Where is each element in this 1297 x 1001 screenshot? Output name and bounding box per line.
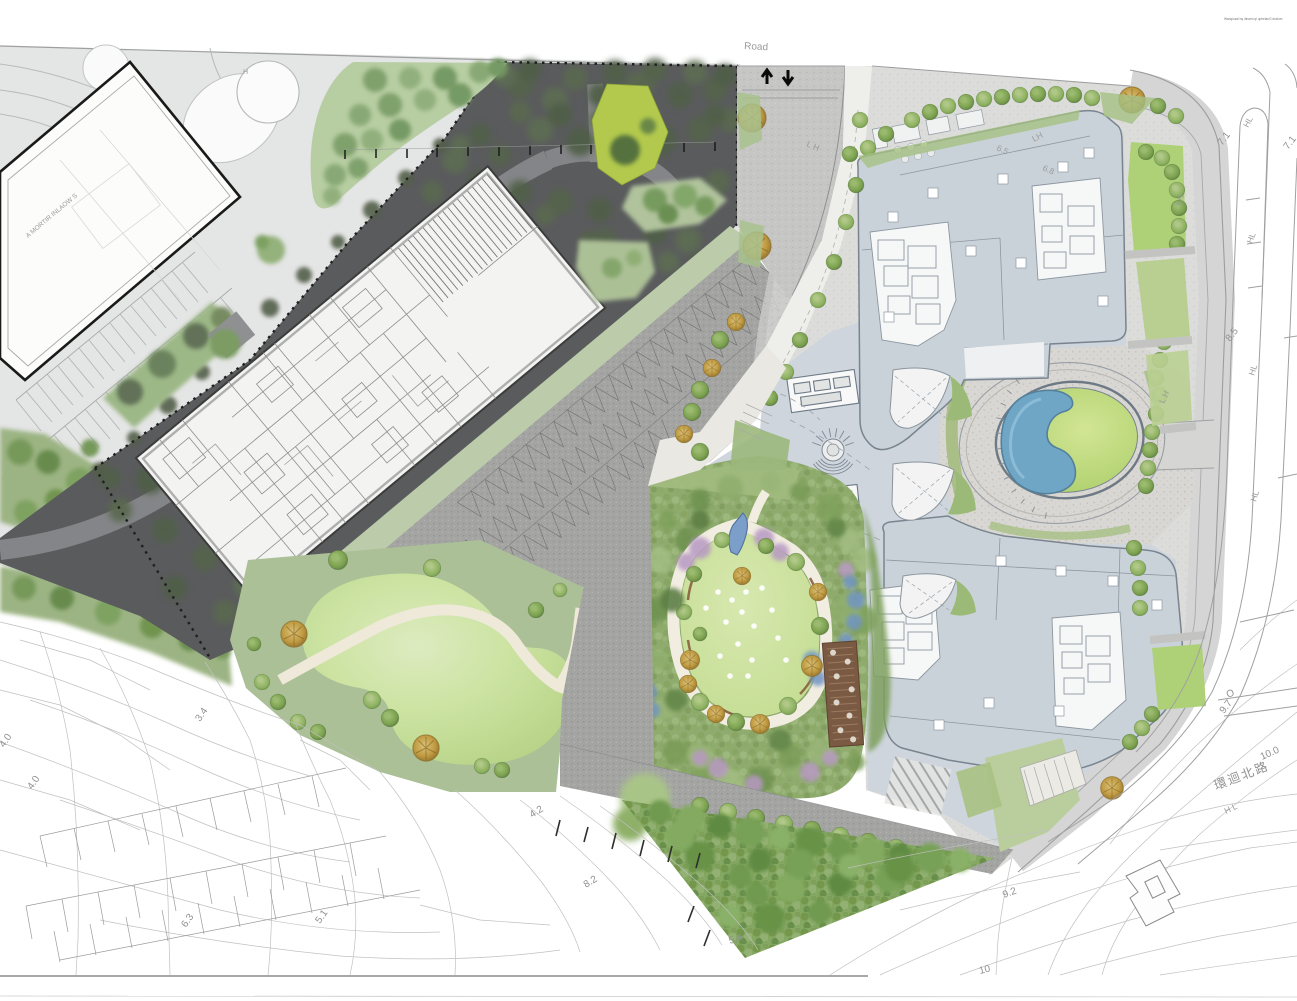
- svg-text:H: H: [243, 69, 248, 76]
- svg-text:Road: Road: [744, 41, 768, 53]
- svg-text:Wanqiuzai hq dinami qi uphelan: Wanqiuzai hq dinami qi uphelanG dratum: [1224, 17, 1283, 21]
